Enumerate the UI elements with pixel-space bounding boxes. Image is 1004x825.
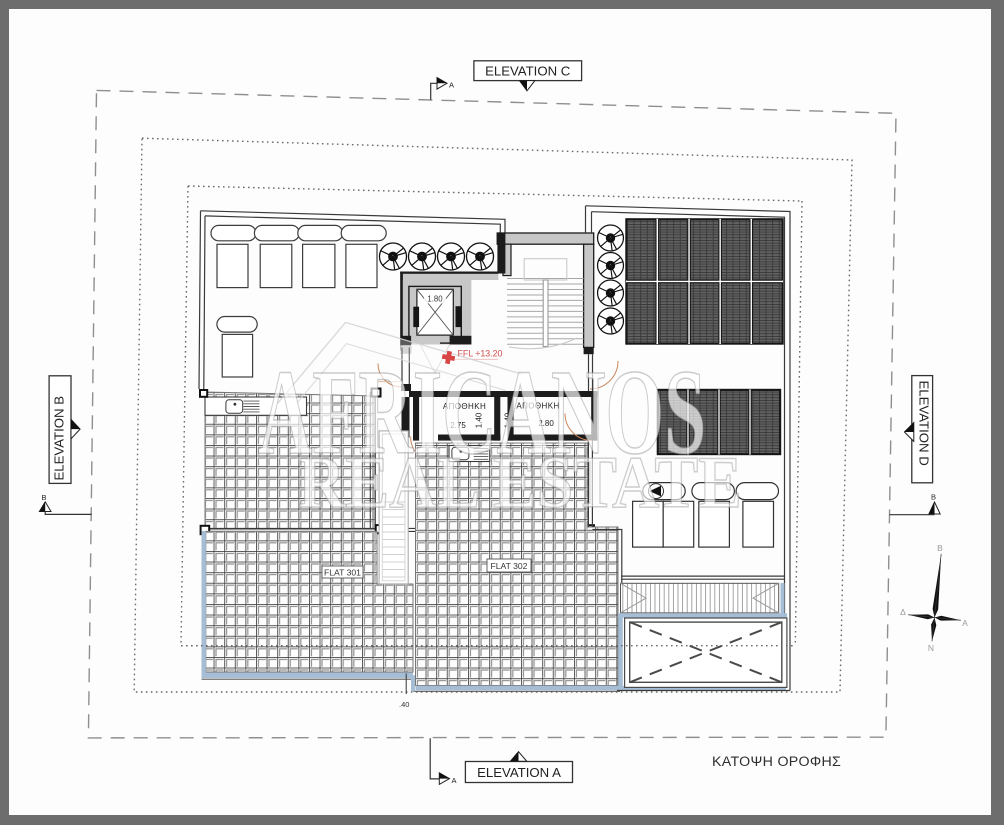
svg-text:B: B — [937, 543, 943, 553]
svg-text:ELEVATION A: ELEVATION A — [477, 765, 561, 780]
svg-text:1.80: 1.80 — [427, 295, 443, 304]
svg-text:N: N — [928, 643, 934, 653]
svg-text:A: A — [962, 618, 968, 628]
svg-text:FLAT 302: FLAT 302 — [491, 561, 528, 571]
svg-text:REAL ESTATE: REAL ESTATE — [298, 442, 742, 524]
svg-text:ELEVATION C: ELEVATION C — [485, 63, 571, 78]
svg-text:FLAT 301: FLAT 301 — [324, 568, 361, 578]
svg-text:FFL +13.20: FFL +13.20 — [458, 349, 503, 359]
svg-text:A: A — [452, 776, 457, 785]
svg-text:B: B — [931, 493, 936, 502]
svg-text:ELEVATION B: ELEVATION B — [52, 396, 67, 481]
svg-text:Δ: Δ — [900, 607, 906, 617]
svg-text:ΚΑΤΟΨΗ ΟΡΟΦΗΣ: ΚΑΤΟΨΗ ΟΡΟΦΗΣ — [712, 754, 841, 770]
svg-text:B: B — [42, 493, 47, 502]
svg-text:.40: .40 — [399, 700, 409, 709]
svg-text:A: A — [449, 81, 454, 90]
svg-text:ELEVATION D: ELEVATION D — [916, 381, 931, 466]
